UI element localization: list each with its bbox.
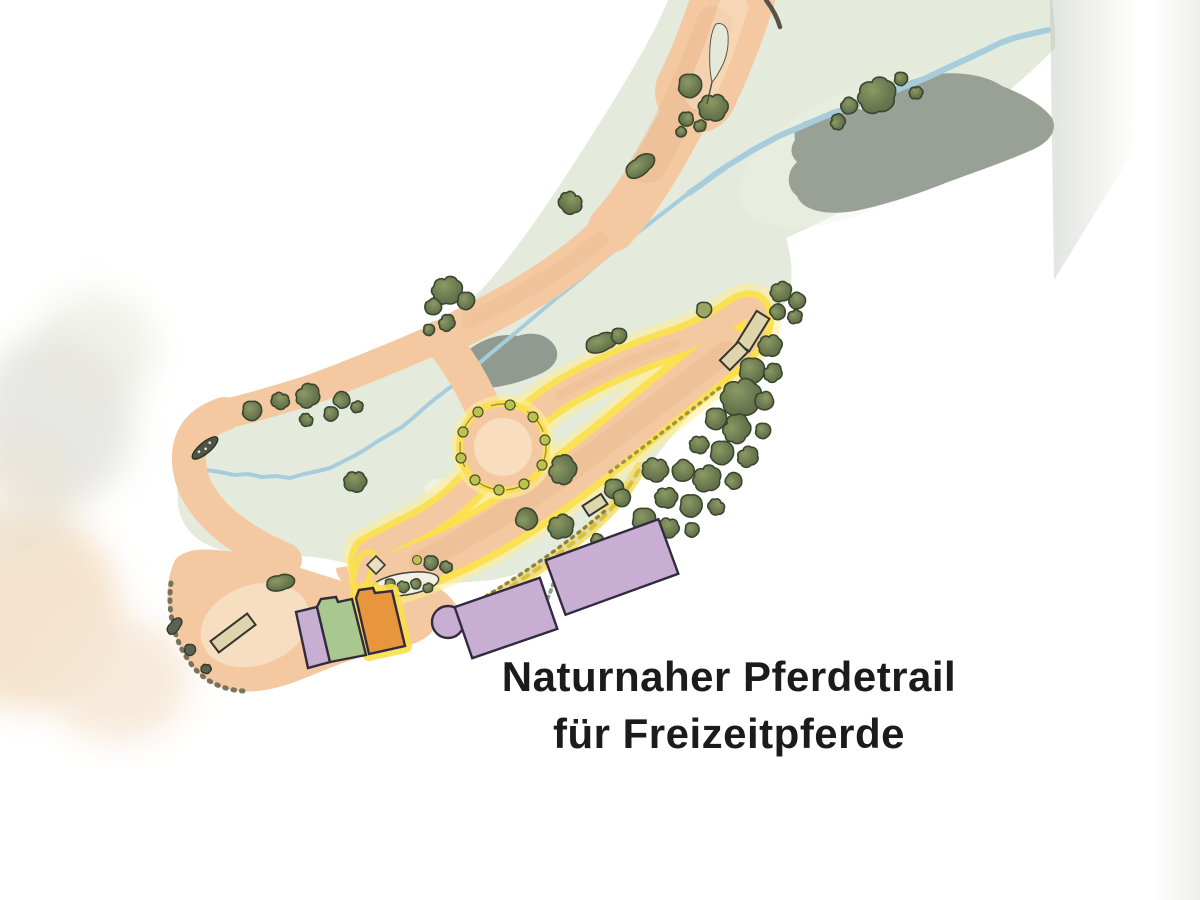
- bush: [788, 310, 803, 324]
- barn-building-1: [455, 578, 558, 658]
- map-corner-shadow: [1050, 0, 1140, 280]
- bush: [243, 401, 262, 420]
- blurred-left-margin-smudges: [0, 292, 190, 742]
- bush: [706, 496, 727, 517]
- site-plan-page: Naturnaher Pferdetrail für Freizeitpferd…: [0, 0, 1200, 900]
- round-pen: [451, 395, 555, 499]
- bush: [652, 484, 680, 512]
- bush: [694, 120, 706, 132]
- bush: [693, 465, 721, 492]
- bush: [548, 514, 574, 539]
- bush-yellow-dot: [413, 556, 422, 565]
- bush: [735, 444, 761, 469]
- bush: [756, 423, 771, 438]
- bush: [424, 556, 438, 570]
- horse-trail-site-plan-map: [0, 0, 1200, 900]
- bush: [680, 495, 702, 517]
- bush: [612, 328, 627, 343]
- bush: [685, 523, 699, 537]
- bush: [687, 432, 712, 456]
- bush: [697, 302, 712, 317]
- map-caption: Naturnaher Pferdetrail für Freizeitpferd…: [502, 648, 956, 762]
- stone: [185, 644, 196, 655]
- bush: [324, 407, 338, 421]
- bush: [424, 324, 435, 335]
- bush: [679, 74, 702, 97]
- bush: [351, 401, 363, 413]
- bush: [723, 470, 746, 493]
- bush: [711, 441, 734, 464]
- bush: [458, 292, 475, 309]
- caption-line-1: Naturnaher Pferdetrail: [502, 648, 956, 705]
- bush: [423, 583, 433, 593]
- bush: [895, 72, 908, 85]
- page-right-edge-shade: [1150, 0, 1200, 900]
- caption-line-2: für Freizeitpferde: [502, 705, 956, 762]
